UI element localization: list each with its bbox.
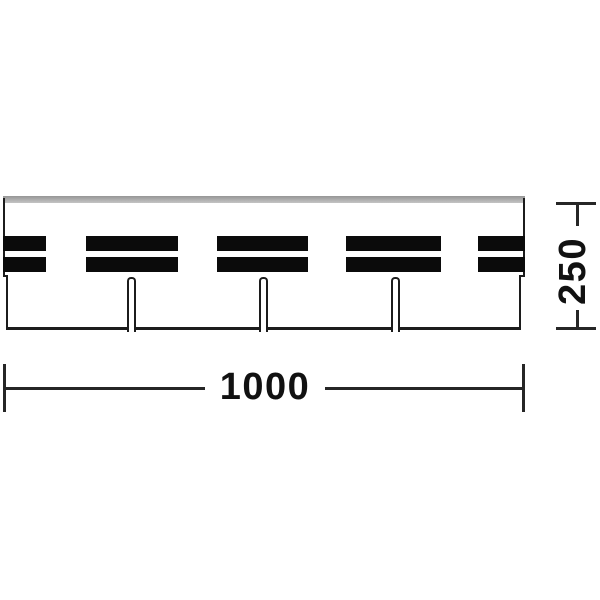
height-dimension-label: 250 (554, 231, 592, 311)
sealant-bar (86, 236, 178, 251)
sealant-bar (217, 236, 308, 251)
sealant-bar (478, 236, 525, 251)
height-dimension-line-top (576, 204, 579, 226)
width-dimension-line-right (325, 387, 524, 390)
sealant-bar (478, 257, 525, 272)
sealant-bar (217, 257, 308, 272)
width-dimension-line-left (4, 387, 205, 390)
width-dimension-label: 1000 (203, 368, 327, 406)
keyway-slot (127, 277, 136, 332)
sealant-bar (346, 236, 441, 251)
sealant-bar (346, 257, 441, 272)
keyway-slot (391, 277, 400, 332)
shingle-technical-drawing: 1000 250 (0, 0, 600, 600)
sealant-bar (3, 257, 46, 272)
sealant-bar (86, 257, 178, 272)
sealant-bar (3, 236, 46, 251)
height-dimension-line-bottom (576, 310, 579, 328)
keyway-slot (259, 277, 268, 332)
